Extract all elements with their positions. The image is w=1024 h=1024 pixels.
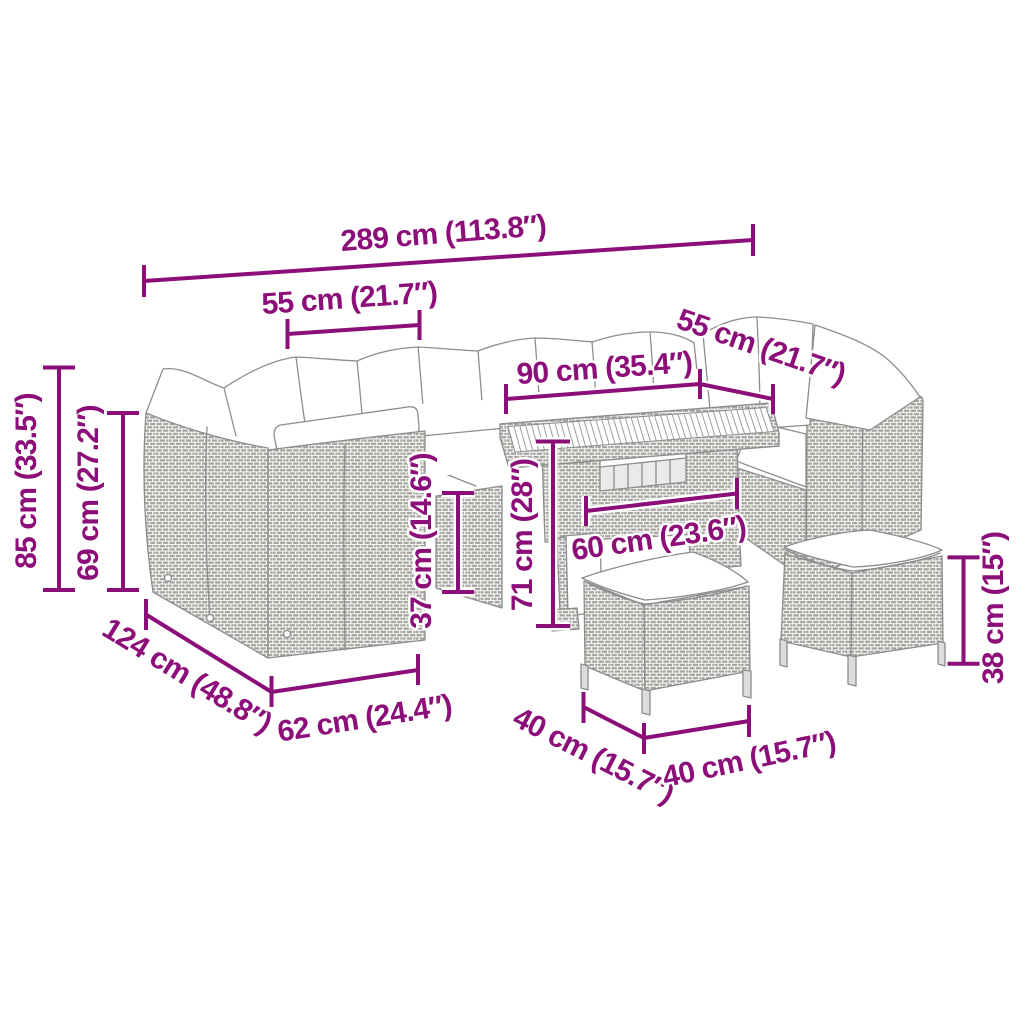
svg-text:62 cm (24.4″): 62 cm (24.4″) (275, 689, 454, 749)
svg-text:289 cm (113.8″): 289 cm (113.8″) (339, 209, 547, 258)
svg-text:37 cm (14.6″): 37 cm (14.6″) (405, 453, 438, 629)
svg-text:55 cm (21.7″): 55 cm (21.7″) (261, 276, 439, 321)
svg-text:69 cm (27.2″): 69 cm (27.2″) (72, 405, 105, 581)
svg-text:40 cm (15.7″): 40 cm (15.7″) (508, 701, 680, 810)
svg-text:38 cm (15″): 38 cm (15″) (977, 532, 1010, 684)
svg-text:71 cm (28″): 71 cm (28″) (506, 459, 539, 611)
svg-text:85 cm (33.5″): 85 cm (33.5″) (10, 393, 43, 569)
